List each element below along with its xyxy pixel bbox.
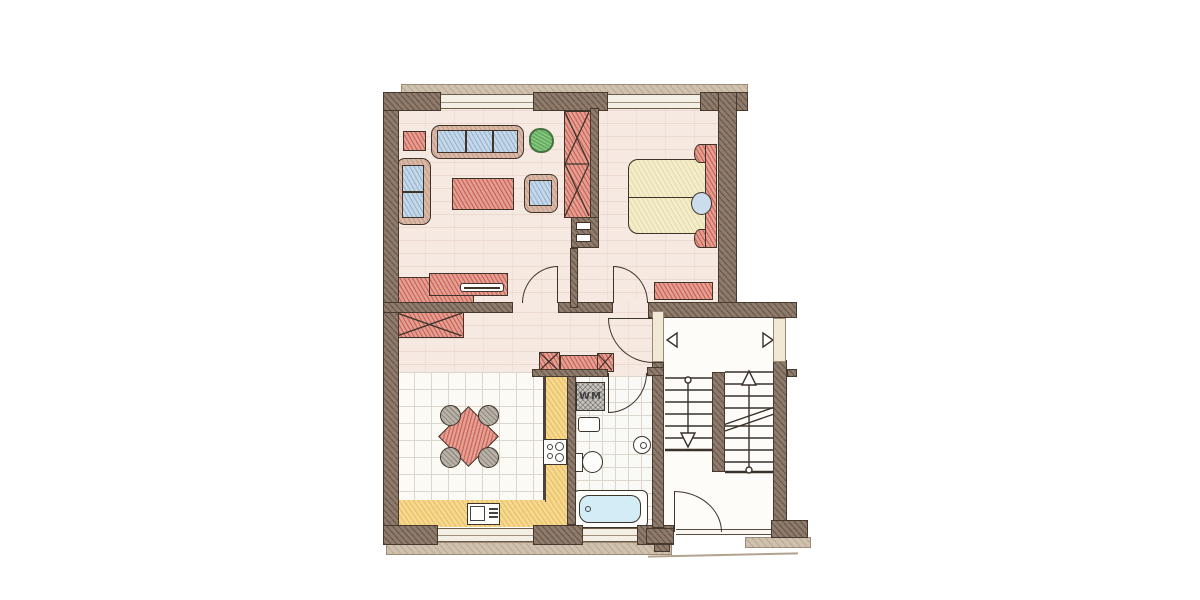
bedside-stool (691, 192, 712, 215)
stairwell-window-pier (773, 318, 786, 362)
oven-vent (489, 512, 498, 514)
wall-bath-top-1 (532, 369, 608, 377)
bathroom-window (583, 528, 637, 542)
coffee-table (452, 178, 514, 210)
burner (547, 453, 553, 459)
wardrobe (564, 111, 591, 218)
chimney-flue (576, 222, 591, 230)
stairs-down-start-icon (685, 377, 691, 383)
wall-right-bedroom (718, 92, 737, 304)
cushion-divider (492, 130, 494, 153)
wall-stairwell-bottom-foot (654, 544, 670, 552)
dining-chair (440, 405, 461, 426)
bathtub-drain (585, 506, 591, 512)
wardrobe-x-icon (565, 112, 589, 216)
bedroom-window (608, 94, 700, 109)
sofa-two-seat (396, 158, 431, 225)
stairs-down-arrow-icon (681, 433, 695, 447)
wall-kitchen-bath (567, 372, 576, 525)
living-room-window (441, 94, 533, 109)
tv-slot (460, 283, 504, 292)
entry-door-jamb (652, 311, 664, 362)
kitchen-window (438, 528, 533, 542)
plant (529, 128, 554, 153)
washing-machine: WM (576, 382, 605, 411)
landing-left-arrow-icon (667, 333, 677, 347)
dining-chair (440, 447, 461, 468)
basin-drain (640, 442, 647, 449)
toilet-bowl (582, 451, 603, 473)
stairs-up-arrow-icon (742, 371, 756, 385)
nightstand-top (694, 144, 706, 163)
wall-mid-living (383, 302, 513, 313)
stairs-up-start-icon (746, 467, 752, 473)
bedroom-sideboard (654, 282, 713, 300)
washing-machine-label: WM (579, 391, 602, 402)
armchair-cushion (529, 180, 552, 206)
burner (555, 453, 564, 462)
landing-right-arrow-icon (763, 333, 773, 347)
dining-chair (478, 405, 499, 426)
chimney (571, 217, 599, 248)
cabinet-x-icon (540, 353, 558, 370)
armchair (524, 174, 558, 213)
sideboard-x-icon (397, 313, 462, 336)
wall-stairwell-right (773, 360, 787, 522)
kitchen-counter-right (545, 372, 567, 502)
cushion-divider (402, 191, 424, 193)
wall-divider-top (590, 108, 599, 220)
sofa-three-seat (431, 125, 524, 159)
wall-stair-central (712, 372, 725, 472)
tv-slot-line (464, 287, 500, 289)
cabinet-x-icon (598, 354, 612, 370)
oven-vent (489, 508, 498, 510)
wall-stairwell-top (648, 302, 797, 318)
bathtub (573, 490, 648, 528)
sofa-cushions (437, 130, 518, 153)
side-table (403, 131, 426, 151)
wall-stairwell-bottom-left (646, 528, 674, 544)
oven-vent (489, 516, 498, 518)
wall-top-1 (383, 92, 441, 111)
oven (467, 503, 500, 525)
wall-stub (787, 369, 797, 377)
wall-mid-bedroom (558, 302, 613, 313)
hall-sideboard (396, 312, 464, 338)
tv-board (429, 273, 508, 296)
chimney-flue (576, 234, 591, 242)
cushion-divider (465, 130, 467, 153)
wall-bottom-2 (533, 525, 583, 545)
burner (547, 444, 553, 450)
dining-chair (478, 447, 499, 468)
wall-bottom-1 (383, 525, 438, 545)
entry-step (745, 537, 811, 548)
nightstand-bottom (694, 229, 706, 248)
bath-shelf (578, 417, 600, 432)
wall-stairwell-left (652, 362, 664, 528)
wall-stairwell-right-foot (771, 520, 808, 538)
floor-plan: WM (0, 0, 1200, 600)
wall-divider-bottom (570, 248, 578, 308)
burner (555, 442, 564, 451)
oven-door (470, 506, 485, 521)
cooktop (543, 439, 567, 465)
wall-bath-top-2 (647, 367, 664, 376)
wall-left (383, 92, 399, 545)
round-basin (633, 436, 651, 454)
